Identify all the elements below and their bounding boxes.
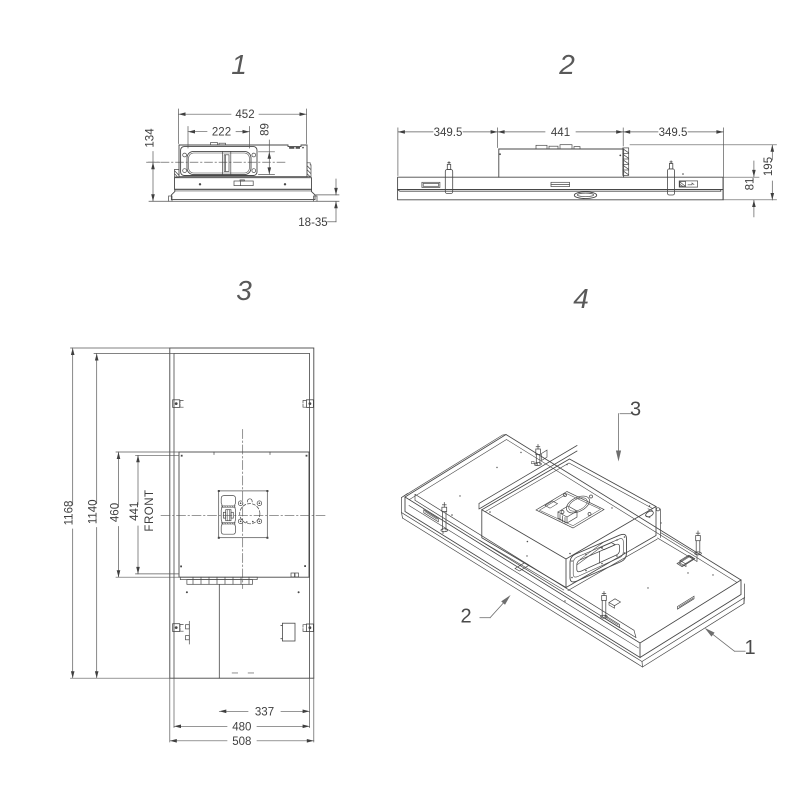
svg-text:134: 134 [145,128,157,148]
svg-text:2: 2 [460,606,471,628]
svg-text:81: 81 [744,178,756,191]
svg-text:1: 1 [744,637,755,659]
svg-text:FRONT: FRONT [144,489,156,531]
svg-text:337: 337 [255,706,274,718]
svg-text:89: 89 [259,123,271,136]
svg-text:460: 460 [110,503,122,522]
svg-text:4: 4 [573,283,589,314]
svg-text:349.5: 349.5 [659,127,688,139]
svg-text:349.5: 349.5 [434,127,463,139]
svg-text:1140: 1140 [88,499,100,524]
svg-text:508: 508 [232,736,251,748]
svg-text:441: 441 [129,502,141,521]
svg-text:452: 452 [235,109,254,121]
svg-text:441: 441 [551,127,570,139]
svg-text:222: 222 [212,127,231,139]
svg-text:1168: 1168 [64,501,76,526]
svg-text:195: 195 [763,157,775,176]
svg-text:480: 480 [232,721,251,733]
svg-text:3: 3 [236,275,252,306]
svg-text:18-35: 18-35 [298,217,327,229]
svg-text:2: 2 [558,49,575,80]
svg-text:3: 3 [630,399,641,421]
svg-text:1: 1 [231,49,247,80]
